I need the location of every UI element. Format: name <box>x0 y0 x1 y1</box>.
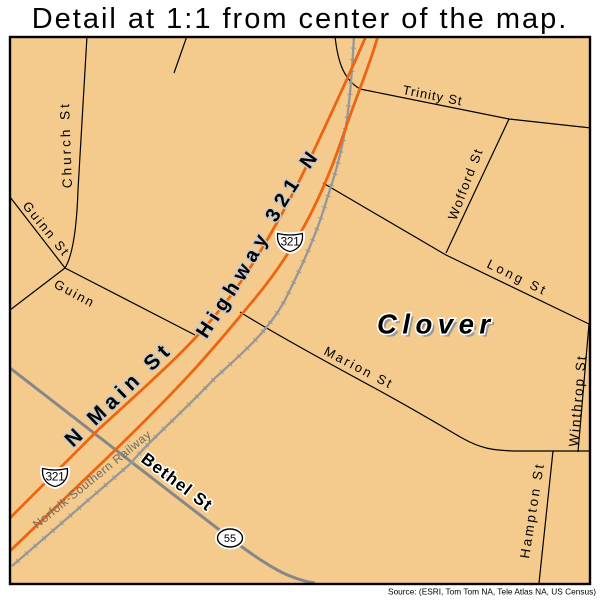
svg-text:55: 55 <box>224 533 236 545</box>
svg-text:321: 321 <box>280 235 300 249</box>
svg-text:Church St: Church St <box>57 101 75 189</box>
svg-text:321: 321 <box>45 470 65 484</box>
svg-text:Clover: Clover <box>377 309 496 340</box>
svg-text:Source: (ESRI, Tom Tom NA, Tel: Source: (ESRI, Tom Tom NA, Tele Atlas NA… <box>388 587 596 597</box>
svg-text:Detail at 1:1 from center of t: Detail at 1:1 from center of the map. <box>32 3 569 35</box>
